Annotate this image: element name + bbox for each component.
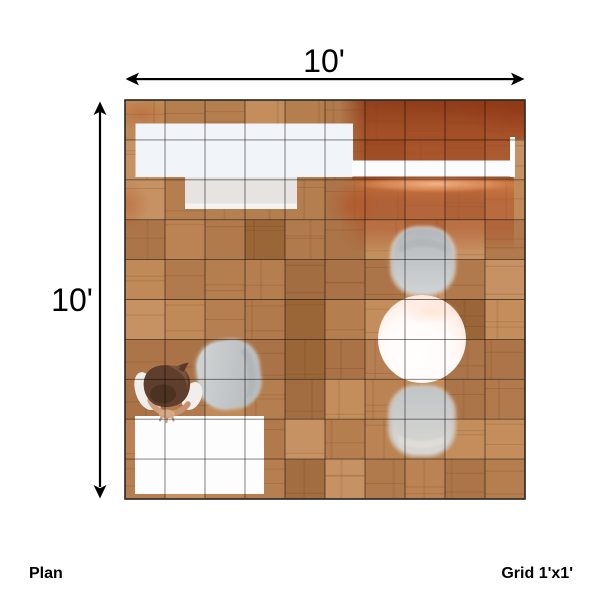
svg-text:10': 10' [303, 43, 345, 79]
svg-text:10': 10' [51, 282, 93, 318]
svg-text:Plan: Plan [29, 565, 63, 582]
svg-text:Grid 1'x1': Grid 1'x1' [501, 565, 573, 582]
